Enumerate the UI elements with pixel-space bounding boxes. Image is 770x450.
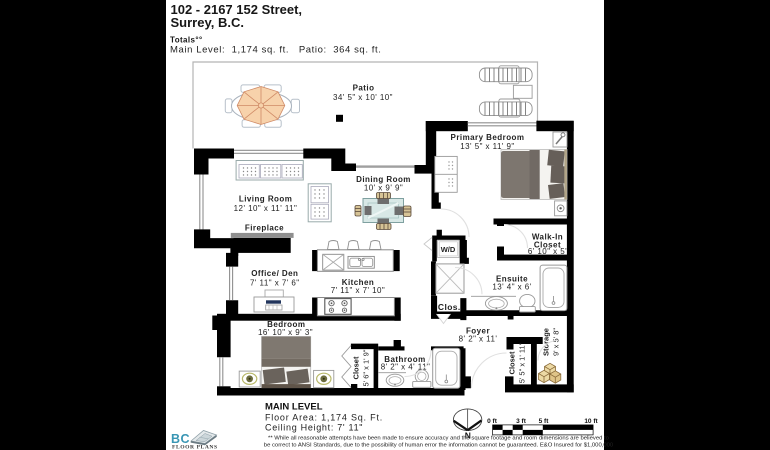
svg-text:Living Room: Living Room — [239, 195, 292, 204]
svg-text:FLOOR PLANS: FLOOR PLANS — [172, 445, 218, 450]
svg-text:MAIN LEVEL: MAIN LEVEL — [265, 402, 323, 413]
svg-text:Ceiling Height: 7' 11": Ceiling Height: 7' 11" — [265, 423, 363, 433]
svg-text:10 ft: 10 ft — [584, 418, 598, 425]
svg-text:6' 10" x 5': 6' 10" x 5' — [528, 247, 567, 256]
svg-text:Fireplace: Fireplace — [245, 224, 284, 233]
svg-text:34' 5" x 10' 10": 34' 5" x 10' 10" — [333, 93, 393, 102]
svg-text:Patio: Patio — [353, 84, 375, 93]
svg-text:5' 5" x 1' 11": 5' 5" x 1' 11" — [518, 342, 527, 383]
svg-text:13' 4" x 6': 13' 4" x 6' — [492, 282, 531, 291]
svg-text:8' 2" x 11': 8' 2" x 11' — [459, 334, 498, 343]
svg-text:Office/ Den: Office/ Den — [251, 269, 298, 278]
svg-text:Surrey, B.C.: Surrey, B.C. — [171, 15, 244, 30]
svg-text:5' 6" x 1' 9": 5' 6" x 1' 9" — [362, 349, 371, 386]
svg-text:Floor Area: 1,174 Sq. Ft.: Floor Area: 1,174 Sq. Ft. — [265, 413, 383, 423]
svg-text:12' 10" x 11' 11": 12' 10" x 11' 11" — [234, 204, 298, 213]
svg-text:7' 11" x 7' 6": 7' 11" x 7' 6" — [250, 279, 300, 288]
svg-text:5 ft: 5 ft — [539, 418, 550, 425]
svg-text:W/D: W/D — [441, 245, 456, 254]
svg-text:Closet: Closet — [352, 356, 361, 379]
svg-text:Main Level: 1,174 sq. ft. P: Main Level: 1,174 sq. ft. Patio: 364 sq.… — [170, 45, 382, 56]
svg-text:10' x 9' 9": 10' x 9' 9" — [364, 184, 403, 193]
svg-text:Totals°°: Totals°° — [170, 36, 203, 45]
svg-text:Primary Bedroom: Primary Bedroom — [451, 133, 525, 142]
svg-text:** While all reasonable attemp: ** While all reasonable attempts have be… — [268, 436, 610, 442]
svg-text:9' x 5' 8": 9' x 5' 8" — [552, 328, 561, 356]
svg-text:be correct to ANSI Standards,: be correct to ANSI Standards, due to the… — [264, 442, 614, 448]
svg-text:0 ft: 0 ft — [487, 418, 498, 425]
svg-text:16' 10" x 9' 3": 16' 10" x 9' 3" — [258, 328, 313, 337]
svg-text:3 ft: 3 ft — [516, 418, 527, 425]
svg-text:Closet: Closet — [508, 351, 517, 374]
svg-text:7' 11" x 7' 10": 7' 11" x 7' 10" — [331, 286, 385, 295]
svg-text:Clos.: Clos. — [438, 302, 461, 312]
